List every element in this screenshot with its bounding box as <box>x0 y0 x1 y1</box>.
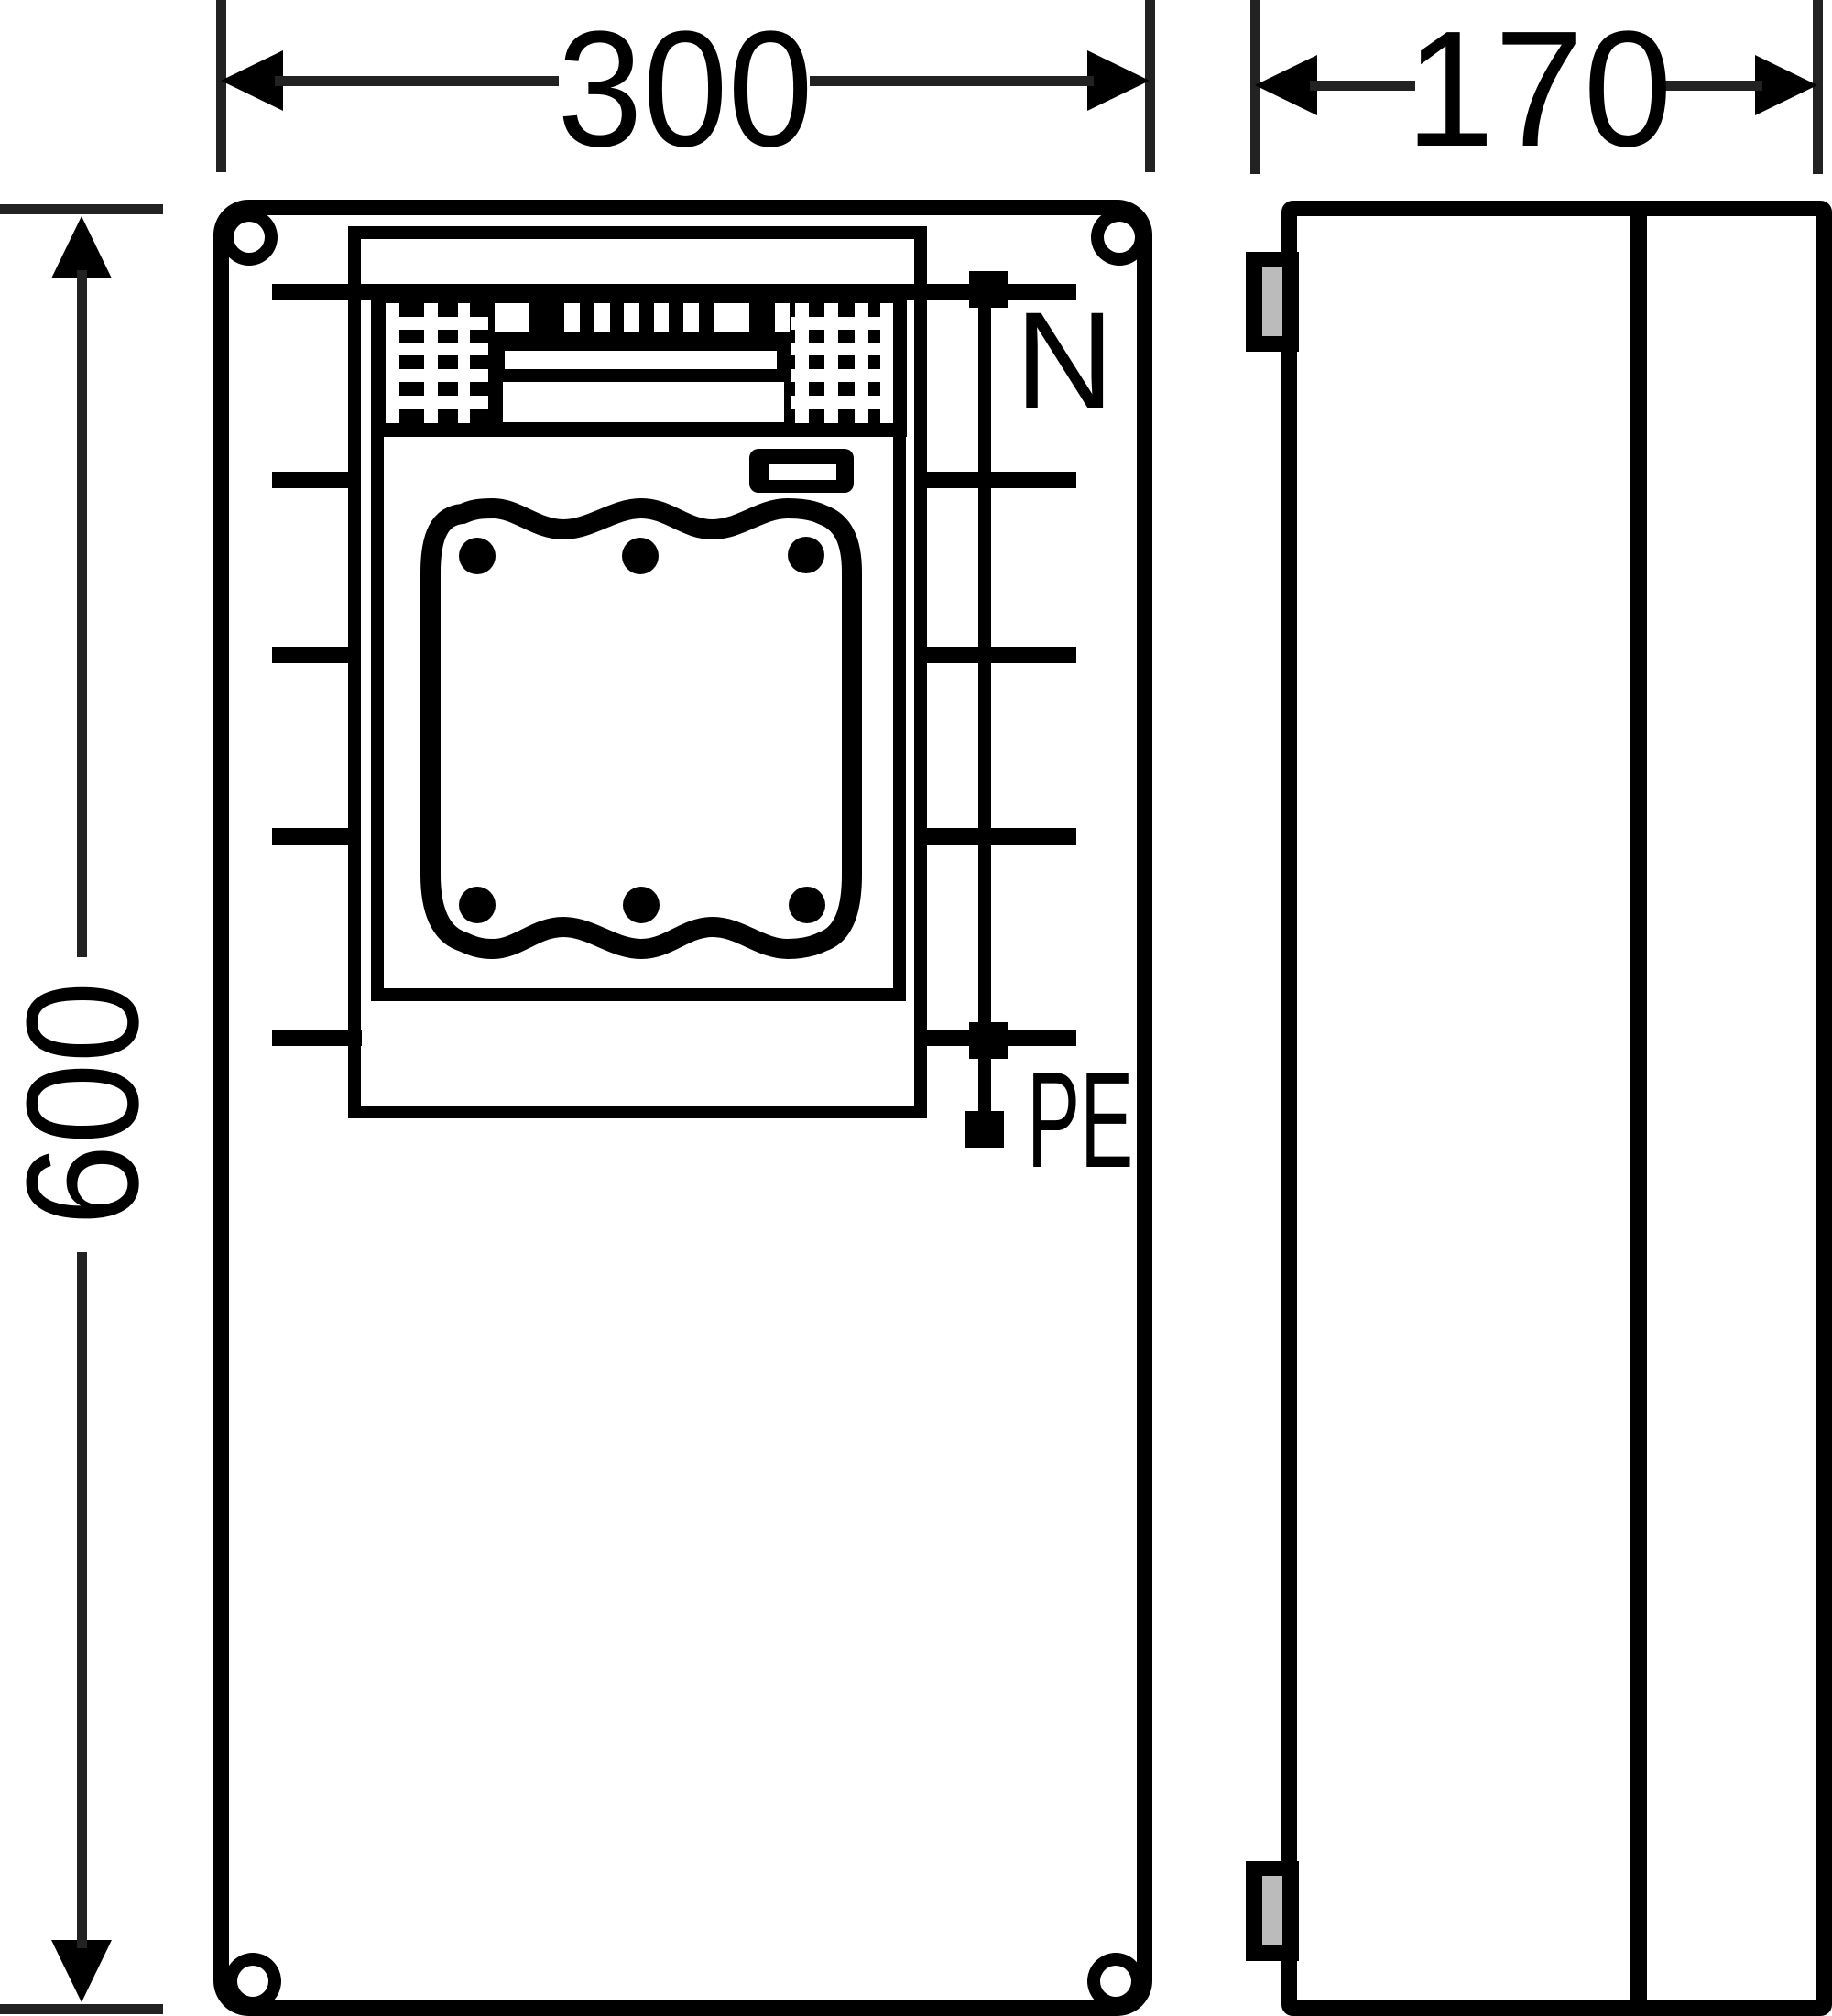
svg-text:600: 600 <box>0 981 171 1226</box>
svg-text:300: 300 <box>557 0 812 180</box>
svg-text:N: N <box>1015 283 1114 437</box>
svg-text:170: 170 <box>1405 0 1672 181</box>
svg-text:PE: PE <box>1027 1044 1133 1196</box>
